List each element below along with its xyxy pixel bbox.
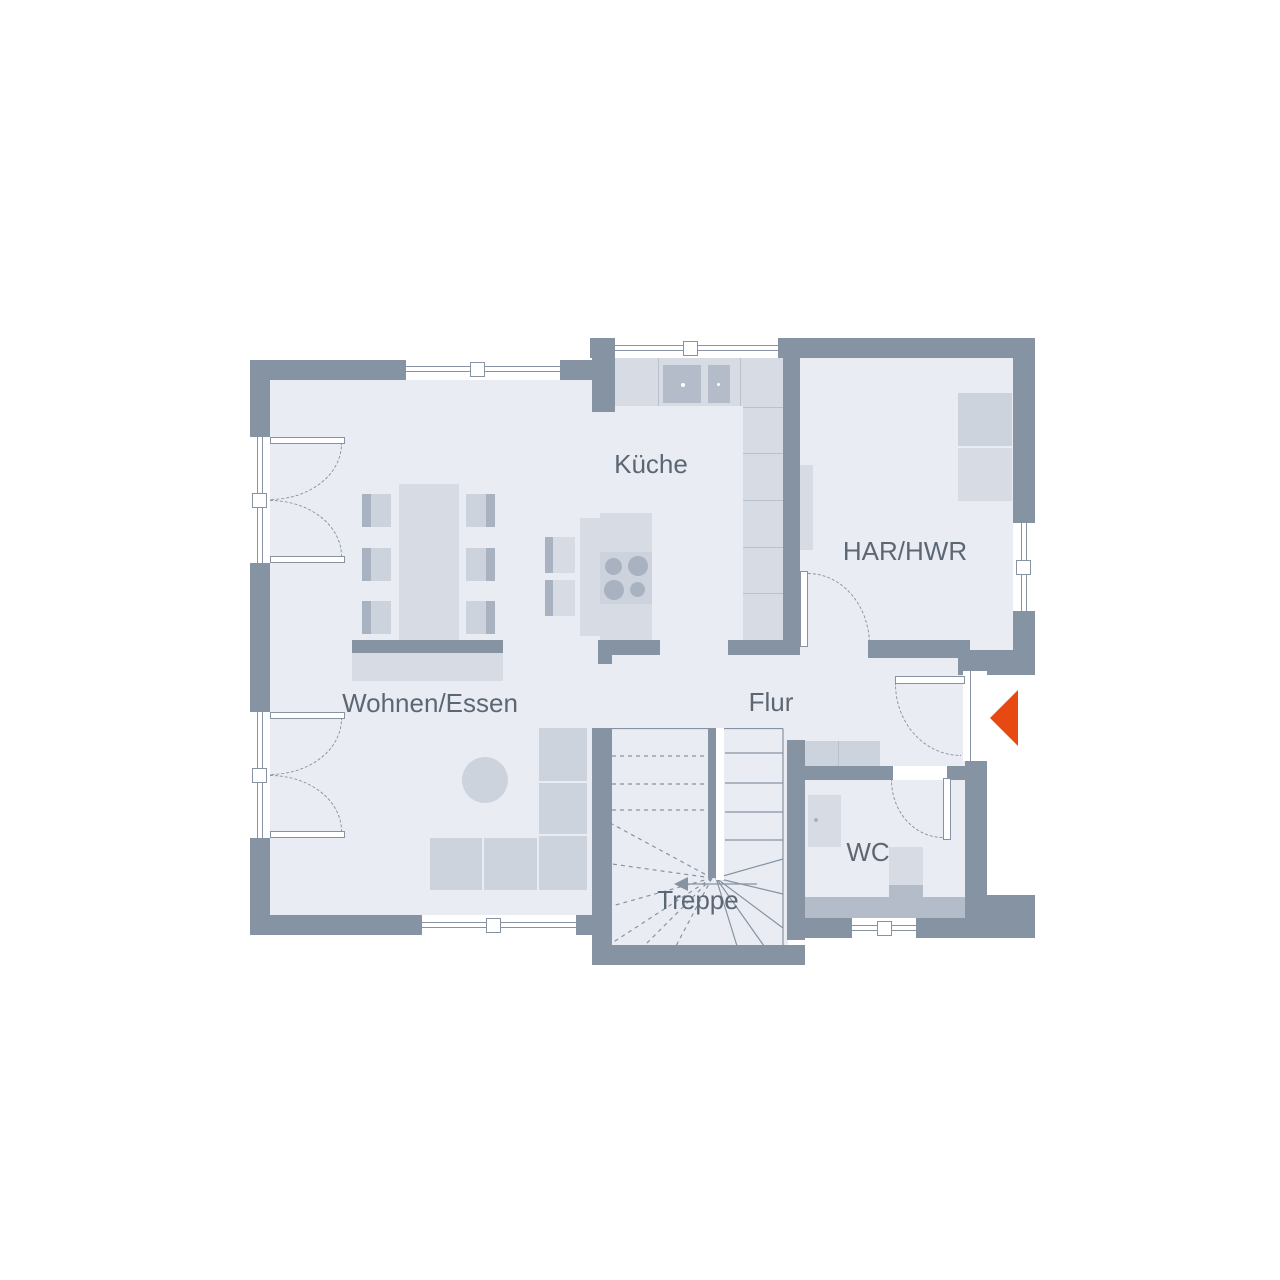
chair-left-2-seat (371, 548, 391, 581)
stool-1 (553, 537, 575, 573)
wall-kitchen-har (783, 358, 800, 654)
sink-drain-dot (681, 383, 685, 387)
stairs-solid-treads (725, 753, 783, 840)
cabinet-line-3 (743, 500, 783, 501)
counter-divider-1 (658, 358, 659, 406)
cabinet-line-1 (743, 407, 783, 408)
counter-divider-2 (740, 358, 741, 406)
window-har-right (1013, 523, 1035, 611)
cabinet-line-5 (743, 593, 783, 594)
entrance-arrow-icon (990, 690, 1018, 746)
wall-kitchen-bottom-right (728, 640, 800, 655)
window-handle (252, 493, 267, 508)
window-living-top (406, 358, 560, 380)
wc-door-leaf (943, 778, 951, 840)
stool-2 (553, 580, 575, 616)
hall-cabinet-divider (838, 741, 839, 767)
french-door-upper-leaf-top (270, 437, 345, 444)
chair-right-2-seat (466, 548, 486, 581)
wall-entry-below-door (965, 758, 987, 898)
har-door-leaf (800, 571, 808, 647)
room-label-wc: WC (846, 839, 889, 865)
har-appliance-2 (958, 448, 1012, 501)
sideboard (352, 653, 503, 681)
stool-1-band (545, 537, 553, 573)
window-handle (470, 362, 485, 377)
sofa-cushion-h2 (484, 838, 537, 890)
window-handle (877, 921, 892, 936)
stool-2-band (545, 580, 553, 616)
floor-plan-canvas: Küche HAR/HWR Wohnen/Essen Flur WC Trepp… (0, 0, 1280, 1280)
chair-right-2 (486, 548, 495, 581)
wall-har-bottom (868, 640, 970, 658)
wc-toilet (889, 847, 923, 885)
stairs-dashed-treads (612, 756, 708, 810)
sideboard-edge (352, 640, 503, 653)
sofa-cushion-v2 (539, 783, 587, 834)
window-handle (252, 768, 267, 783)
wall-wc-inner-strip (805, 897, 965, 919)
french-door-upper-glazing (250, 437, 270, 563)
chair-right-3-seat (466, 601, 486, 634)
chair-left-3 (362, 601, 371, 634)
stairs-spine-wall (708, 728, 716, 878)
cooktop-burner-4 (630, 582, 645, 597)
har-cabinet (798, 465, 813, 550)
dining-table (399, 484, 459, 641)
room-label-flur: Flur (749, 689, 794, 715)
cooktop-burner-1 (605, 558, 622, 575)
window-kitchen-top (615, 338, 778, 358)
sofa-cushion-v3 (539, 836, 587, 890)
french-door-upper-leaf-bottom (270, 556, 345, 563)
chair-left-1-seat (371, 494, 391, 527)
french-door-lower-glazing (250, 712, 270, 838)
room-label-har-hwr: HAR/HWR (843, 538, 967, 564)
cooktop-burner-2 (628, 556, 648, 576)
window-handle (1016, 560, 1031, 575)
chair-left-3-seat (371, 601, 391, 634)
stairs-spine-gap (716, 728, 724, 880)
room-label-kueche: Küche (614, 451, 688, 477)
french-door-lower-leaf-top (270, 712, 345, 719)
wc-sink (808, 795, 841, 847)
wc-sink-dot (814, 818, 818, 822)
har-appliance-1 (958, 393, 1012, 446)
wall-stairs-left (592, 728, 612, 965)
wall-kitchen-left-stub (592, 338, 615, 412)
room-label-wohnen-essen: Wohnen/Essen (342, 690, 518, 716)
window-living-bottom (422, 915, 576, 935)
sofa-cushion-v1 (539, 728, 587, 781)
room-label-treppe: Treppe (657, 887, 738, 913)
french-door-lower-leaf-bottom (270, 831, 345, 838)
wc-door-opening (893, 766, 947, 780)
island-side-panel (580, 518, 600, 636)
stairs-treads (598, 728, 788, 948)
chair-right-3 (486, 601, 495, 634)
window-handle (683, 341, 698, 356)
kitchen-tall-cabinets (743, 358, 783, 640)
cabinet-line-4 (743, 547, 783, 548)
entrance-door-opening (963, 671, 987, 761)
chair-right-1 (486, 494, 495, 527)
wall-island-stub-v (598, 640, 612, 664)
door-frame-line (970, 671, 971, 761)
cabinet-line-2 (743, 453, 783, 454)
chair-right-1-seat (466, 494, 486, 527)
wall-bottom-stairs (592, 945, 805, 965)
chair-left-2 (362, 548, 371, 581)
chair-left-1 (362, 494, 371, 527)
window-handle (486, 918, 501, 933)
appliance-dot (717, 383, 720, 386)
entrance-door-leaf (895, 676, 965, 684)
window-wc-bottom (852, 918, 916, 938)
sofa-cushion-h1 (430, 838, 482, 890)
cooktop-burner-3 (604, 580, 624, 600)
coffee-table (462, 757, 508, 803)
